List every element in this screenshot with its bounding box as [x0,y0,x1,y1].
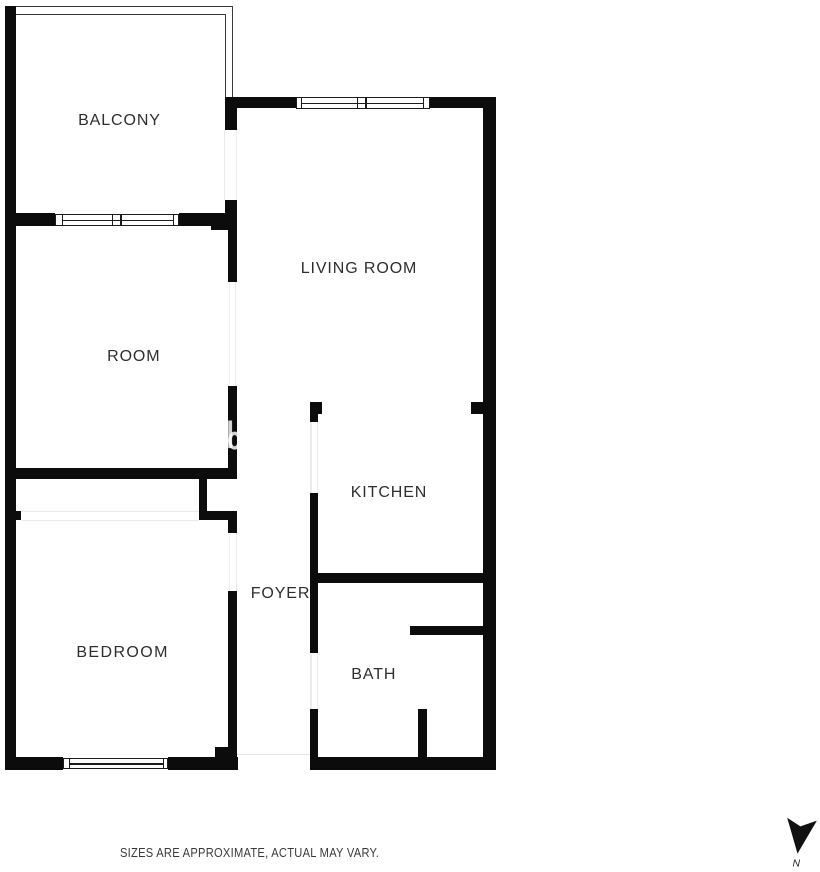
svg-text:N: N [793,858,801,870]
